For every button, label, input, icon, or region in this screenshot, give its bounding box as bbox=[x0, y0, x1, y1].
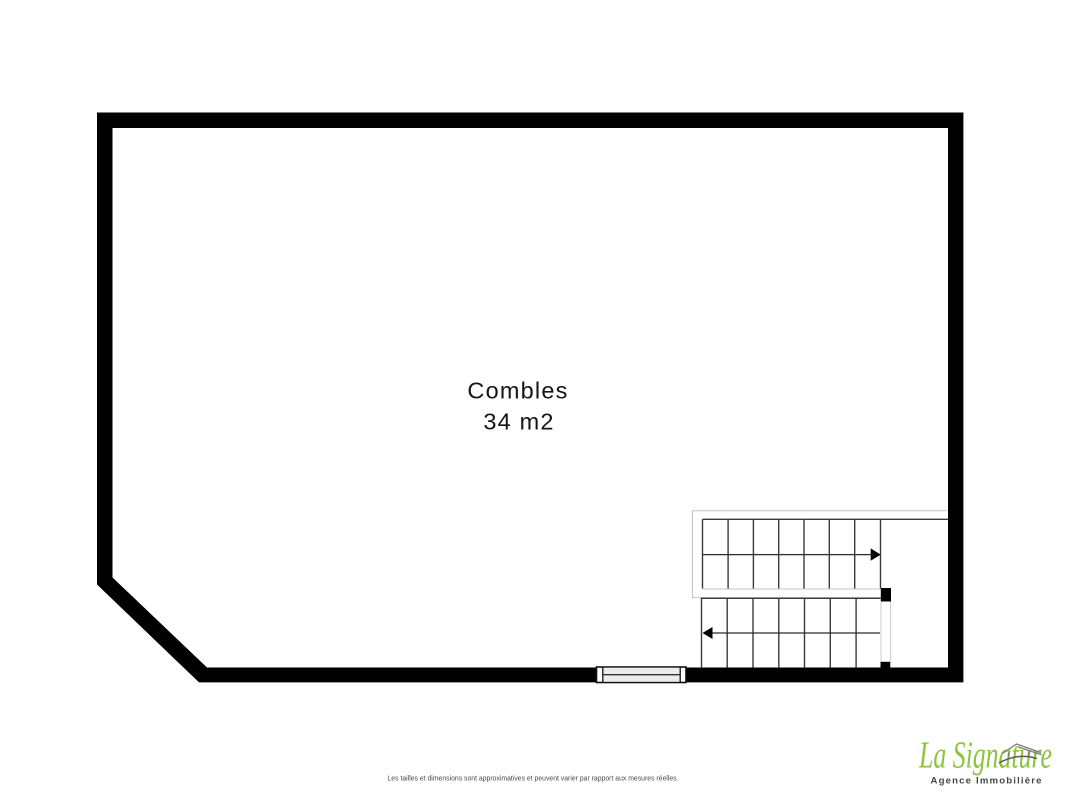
svg-text:Agence Immobilière: Agence Immobilière bbox=[931, 775, 1042, 786]
svg-text:34 m2: 34 m2 bbox=[483, 409, 554, 435]
svg-text:La Signature: La Signature bbox=[918, 735, 1052, 777]
svg-text:Les tailles et dimensions sont: Les tailles et dimensions sont approxima… bbox=[388, 774, 679, 783]
svg-text:Combles: Combles bbox=[467, 378, 568, 404]
